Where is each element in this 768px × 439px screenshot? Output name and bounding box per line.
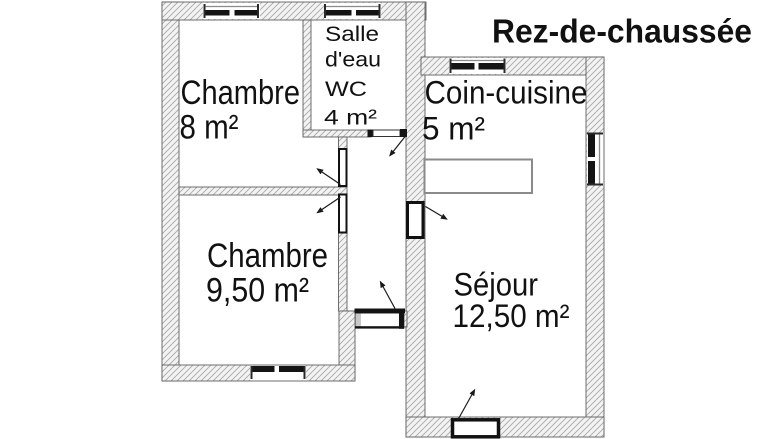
svg-text:Chambre: Chambre [207,237,328,275]
svg-text:8 m²: 8 m² [180,109,239,147]
svg-text:d'eau: d'eau [325,49,381,72]
svg-text:9,50 m²: 9,50 m² [206,272,309,310]
svg-text:4 m²: 4 m² [324,107,377,130]
svg-text:WC: WC [325,78,367,101]
svg-text:Rez-de-chaussée: Rez-de-chaussée [492,13,752,50]
svg-text:5 m²: 5 m² [422,111,485,147]
svg-text:12,50 m²: 12,50 m² [453,298,570,334]
svg-text:Chambre: Chambre [181,74,301,112]
svg-text:Salle: Salle [325,23,379,46]
svg-text:Coin-cuisine: Coin-cuisine [425,75,588,111]
